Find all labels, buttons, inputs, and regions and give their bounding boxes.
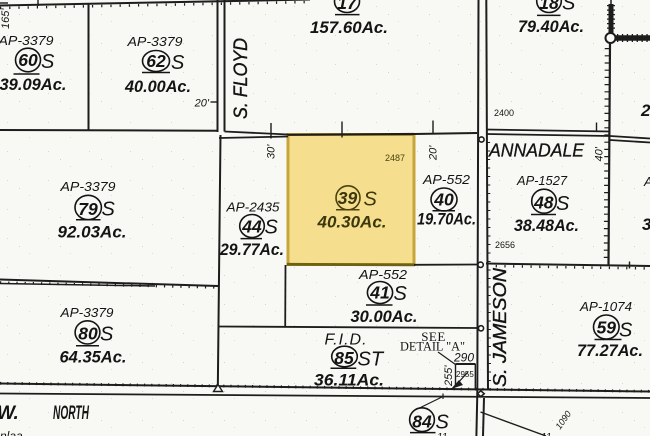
svg-text:AP-3379: AP-3379 (0, 33, 54, 48)
svg-text:2: 2 (640, 101, 650, 120)
svg-text:17: 17 (337, 0, 358, 13)
svg-text:40.00Ac.: 40.00Ac. (124, 77, 191, 96)
svg-text:AP-2435: AP-2435 (225, 200, 280, 215)
svg-text:2400: 2400 (494, 108, 514, 118)
svg-text:39: 39 (338, 188, 358, 208)
svg-text:20': 20' (428, 145, 440, 161)
svg-text:79.40Ac.: 79.40Ac. (518, 17, 584, 36)
svg-text:84: 84 (412, 412, 432, 432)
svg-text:40.30Ac.: 40.30Ac. (317, 213, 387, 232)
svg-text:2955: 2955 (456, 370, 474, 379)
svg-text:S: S (100, 324, 114, 346)
svg-text:F.I.D.: F.I.D. (324, 332, 367, 349)
svg-text:80: 80 (78, 324, 98, 344)
svg-text:AP-3379: AP-3379 (126, 34, 182, 49)
svg-text:AP-552: AP-552 (358, 267, 408, 282)
svg-text:S: S (364, 189, 378, 211)
svg-text:41: 41 (369, 283, 389, 303)
svg-text:40': 40' (594, 146, 606, 161)
svg-text:11: 11 (437, 432, 447, 436)
svg-text:A: A (643, 174, 650, 189)
svg-text:S: S (556, 193, 570, 215)
svg-text:38.48Ac.: 38.48Ac. (514, 216, 579, 235)
svg-text:165': 165' (0, 8, 12, 29)
svg-text:S: S (102, 199, 116, 221)
svg-text:S: S (41, 51, 55, 73)
svg-text:60: 60 (18, 50, 38, 70)
svg-text:92.03Ac.: 92.03Ac. (58, 223, 127, 242)
svg-text:11: 11 (541, 432, 551, 436)
svg-text:S: S (619, 320, 633, 342)
svg-text:2656: 2656 (495, 240, 515, 250)
svg-text:20': 20' (194, 98, 210, 110)
svg-text:85: 85 (334, 348, 354, 368)
svg-text:S: S (171, 52, 185, 74)
svg-text:S. FLOYD: S. FLOYD (231, 38, 252, 119)
svg-text:62: 62 (146, 51, 166, 71)
svg-text:nlaa: nlaa (0, 429, 23, 436)
svg-text:S: S (436, 412, 450, 434)
svg-text:44: 44 (241, 217, 262, 237)
svg-text:39.09Ac.: 39.09Ac. (0, 75, 67, 94)
svg-text:NORTH: NORTH (53, 403, 90, 424)
svg-text:S: S (265, 217, 279, 239)
svg-text:77.27Ac.: 77.27Ac. (577, 341, 643, 360)
svg-text:19.70Ac.: 19.70Ac. (417, 210, 476, 229)
svg-text:157.60Ac.: 157.60Ac. (310, 18, 388, 37)
svg-text:AP-1074: AP-1074 (579, 299, 632, 314)
svg-text:AP-3379: AP-3379 (59, 305, 113, 320)
svg-text:S. JAMESON: S. JAMESON (490, 267, 510, 387)
svg-text:ANNADALE: ANNADALE (488, 141, 585, 161)
svg-text:AP-1527: AP-1527 (516, 173, 568, 188)
svg-text:ST: ST (358, 348, 385, 370)
svg-text:255': 255' (443, 365, 455, 387)
svg-text:64.35Ac.: 64.35Ac. (60, 348, 127, 367)
svg-text:59: 59 (597, 318, 617, 338)
svg-text:29.77Ac.: 29.77Ac. (219, 240, 284, 259)
svg-text:W.: W. (0, 403, 19, 424)
svg-text:3: 3 (642, 215, 650, 234)
svg-text:48: 48 (533, 193, 554, 213)
svg-text:S: S (562, 0, 576, 15)
svg-text:30': 30' (266, 144, 278, 159)
svg-text:AP-552: AP-552 (422, 172, 471, 187)
svg-text:S: S (394, 283, 408, 305)
svg-text:AP-3379: AP-3379 (59, 179, 115, 194)
svg-text:36.11Ac.: 36.11Ac. (314, 371, 384, 390)
svg-text:30.00Ac.: 30.00Ac. (351, 307, 418, 326)
svg-text:2487: 2487 (385, 153, 405, 163)
svg-text:79: 79 (78, 199, 98, 219)
svg-text:40: 40 (433, 190, 454, 210)
svg-text:18: 18 (539, 0, 559, 13)
svg-text:290: 290 (453, 351, 474, 365)
